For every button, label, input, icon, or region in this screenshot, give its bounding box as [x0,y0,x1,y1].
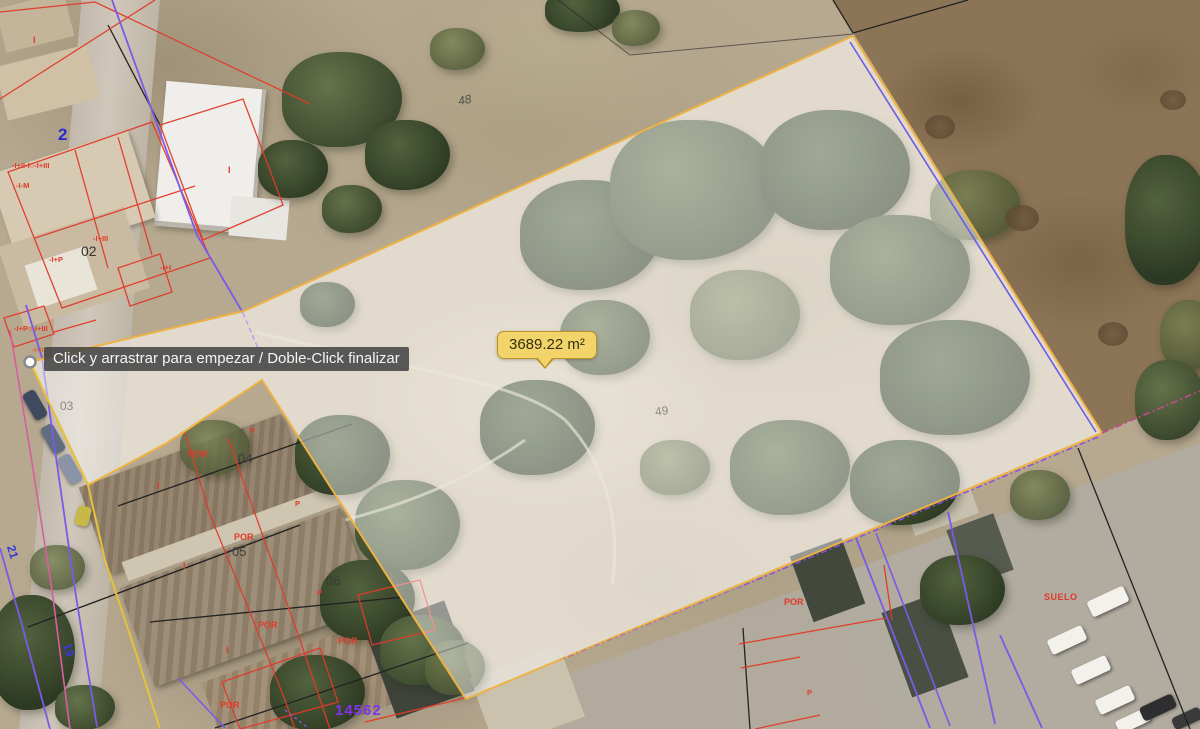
dashdot-boundary-ne [1102,391,1200,433]
building-height-label: -I+II-I○-I+III [12,162,49,170]
street-number-label: 2 [58,126,67,143]
parcel-number: 05 [232,545,246,558]
measure-area-badge: 3689.22 m² [497,331,597,359]
building-height-label: -I+III [93,235,108,243]
parcel-number: 02 [81,244,97,258]
measure-badge-pointer [538,358,552,367]
building-height-label: -I+P○-I+III [14,325,48,333]
building-height-label: -I+P [49,256,63,264]
building-height-label: -I+II [32,348,43,355]
porch-label: POR [234,533,254,542]
suelo-label: SUELO [1044,593,1078,602]
porch-label: POR [338,637,358,646]
cadastral-ref-label: 14562 [335,703,382,718]
measure-vertex-handle[interactable] [25,357,36,368]
map-canvas[interactable]: I -I+II-I○-I+III -I-M 2 -I+III 02 -I+P -… [0,0,1200,729]
parcel-number: 04 [238,452,252,465]
building-height-label: -I-M [16,182,29,190]
building-height-label: P [807,689,812,697]
parcel-use-label: I [157,482,160,491]
measure-tool-tooltip: Click y arrastrar para empezar / Doble-C… [44,347,409,371]
parcel-use-label: I [183,562,186,571]
measure-tool-tooltip-text: Click y arrastrar para empezar / Doble-C… [53,350,400,367]
porch-label: POR [784,598,804,607]
building-height-label: P [295,500,300,508]
parcel-number: 48 [457,93,473,108]
parcel-number: 07 [390,686,404,699]
parcel-use-label: I [228,166,231,175]
parcel-use-label: I [226,646,229,655]
porch-label: POR [188,450,208,459]
parcel-use-label: I [33,36,36,45]
parcel-number: 06 [326,574,340,587]
porch-label: POR [220,701,240,710]
parcel-number: 03 [60,400,73,412]
building-height-label: P [317,589,322,597]
parcel-number: 49 [654,404,669,418]
building-height-label: P [250,427,255,435]
measure-area-value: 3689.22 m² [509,336,585,353]
porch-label: POR [258,621,278,630]
building-height-label: -I+I [160,264,171,272]
